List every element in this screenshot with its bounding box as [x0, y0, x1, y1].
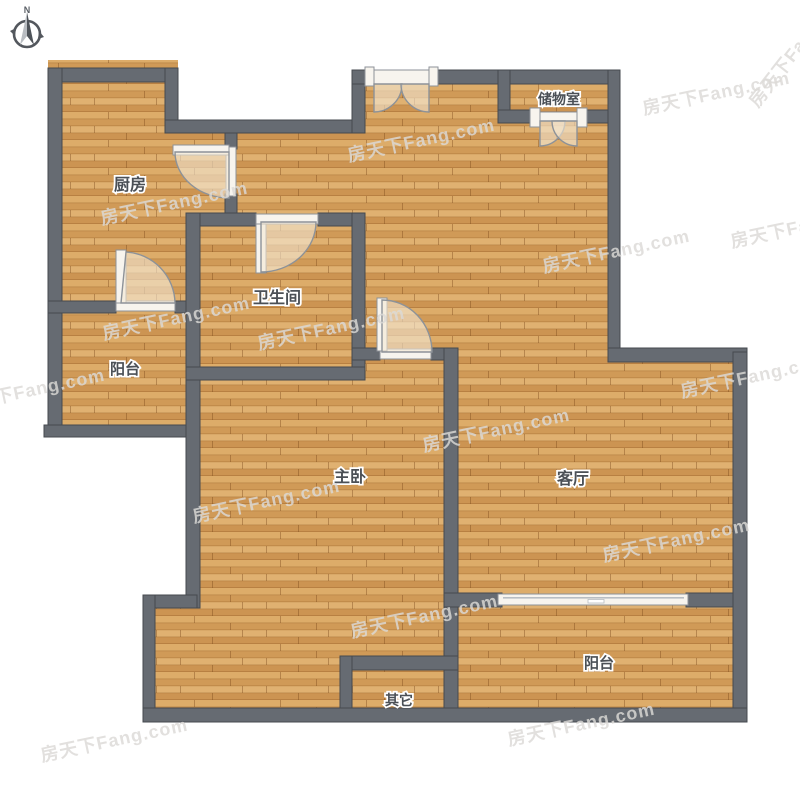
- wall-left-outer: [48, 68, 62, 437]
- wall-top-b: [436, 70, 620, 84]
- wall-bath-left-long: [186, 213, 200, 608]
- storage-door-opening: [540, 112, 577, 121]
- room-label-master-bedroom: 主卧: [334, 467, 366, 486]
- entry-door-jamb-left: [365, 67, 374, 86]
- compass-icon: N: [10, 5, 44, 47]
- floorplan-canvas: 厨房 储物室 卫生间 阳台 主卧 客厅 其它 阳台 N: [0, 0, 800, 800]
- wall-balcony-divider-a: [48, 301, 116, 313]
- floorplan-page: 厨房 储物室 卫生间 阳台 主卧 客厅 其它 阳台 N 房天下Fang.com …: [0, 0, 800, 800]
- wall-left-lower: [143, 595, 155, 722]
- room-label-other: 其它: [385, 692, 413, 708]
- room-label-balcony-left: 阳台: [110, 360, 140, 378]
- wall-kitchen-top: [48, 68, 178, 82]
- entry-door-opening: [374, 70, 429, 84]
- wall-balcony-bottom: [44, 425, 197, 437]
- wall-right-outer: [733, 352, 747, 722]
- wall-right-upper: [608, 70, 620, 362]
- room-label-balcony-bottom: 阳台: [584, 654, 614, 672]
- room-label-bathroom: 卫生间: [253, 288, 301, 307]
- sliding-door-latch: [588, 600, 604, 604]
- room-label-kitchen: 厨房: [114, 175, 146, 194]
- sliding-door-rail-top: [503, 597, 684, 599]
- wall-slider-a: [444, 593, 502, 607]
- room-label-storage: 储物室: [537, 91, 580, 107]
- entry-door-jamb-right: [429, 67, 438, 86]
- storage-door-jamb-left: [530, 108, 540, 127]
- compass-needle-dark: [27, 12, 34, 45]
- compass-needle-light: [20, 12, 27, 45]
- wall-storage-bottom-a: [498, 110, 533, 123]
- storage-door-jamb-right: [577, 108, 587, 127]
- wall-notch-bottom: [165, 120, 365, 133]
- wall-right-step: [608, 348, 747, 362]
- wall-slider-b: [686, 593, 733, 607]
- wall-bed-top-a: [352, 348, 380, 360]
- wall-other-top: [340, 656, 458, 670]
- room-label-living-room: 客厅: [557, 469, 589, 488]
- wall-bottom: [143, 708, 747, 722]
- wall-bath-bottom: [186, 367, 365, 380]
